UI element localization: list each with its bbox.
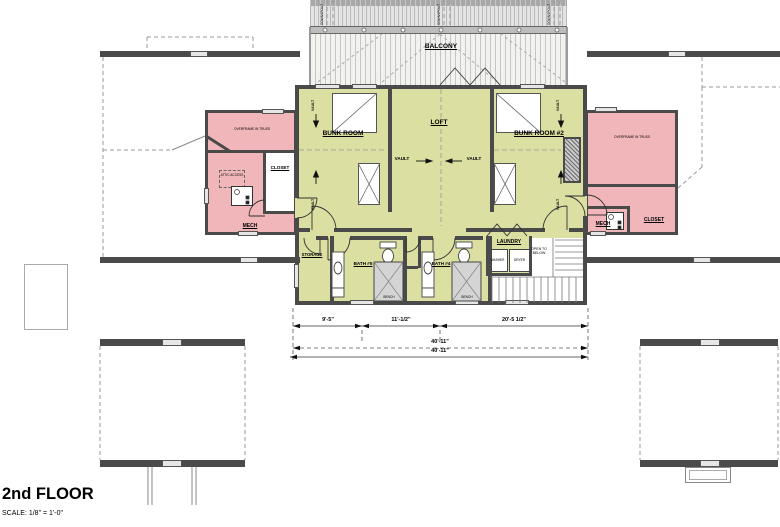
downspout-label: DOWNSPOUT [548, 4, 551, 25]
balcony-hip-lines [318, 34, 565, 82]
ceiling-break-lines [299, 89, 561, 226]
toilet-icon [380, 242, 396, 248]
vault-label: VAULT [464, 157, 484, 162]
room-label-closet-right: CLOSET [638, 218, 670, 223]
room-label-mech-right: MECH [590, 222, 616, 227]
room-label-laundry: LAUNDRY [487, 240, 531, 245]
room-label-mech-left: MECH [236, 224, 264, 229]
toilet-icon [459, 249, 470, 263]
roof-valley-lines [148, 136, 205, 505]
open-to-below-label: OPEN TO BELOW [526, 248, 552, 255]
dryer-label: DRYER [509, 259, 530, 262]
scale-note: SCALE: 1/8" = 1'-0" [2, 510, 63, 517]
room-label-bath4: BATH #4 [424, 262, 458, 267]
room-label-bath5: BATH #5 [346, 262, 380, 267]
note-overframe-right: OVERFRAME IN TRUSS [608, 136, 656, 139]
dim-seg2: 11'-1/2" [375, 318, 427, 324]
room-label-loft: LOFT [424, 120, 454, 127]
plan-linework [0, 0, 780, 527]
bed-lines [332, 93, 541, 205]
room-label-storage: STORAGE [296, 253, 328, 257]
roof-dashed-lines [100, 0, 780, 460]
dim-seg3: 20'-5 1/2" [478, 318, 550, 324]
sink-icon [334, 262, 342, 274]
attic-diagonal-wall [206, 136, 231, 152]
page-title: 2nd FLOOR [2, 486, 94, 503]
vault-label-vertical: VAULT [557, 100, 561, 111]
downspout-label: DOWNSPOUT [438, 4, 441, 25]
toilet-icon [456, 242, 472, 248]
room-label-bunk-room-2: BUNK ROOM #2 [510, 131, 568, 138]
downspout-label: DOWNSPOUT [321, 4, 324, 25]
floor-plan: ATTIC ACCESS [0, 0, 780, 527]
door-swings [249, 68, 607, 260]
water-heater-details [235, 190, 622, 230]
bench-label: BENCH [455, 296, 479, 299]
toilet-icon [383, 249, 394, 263]
vault-label-vertical: VAULT [557, 199, 561, 210]
vault-label-vertical: VAULT [312, 199, 316, 210]
bench-label: BENCH [377, 296, 401, 299]
room-label-closet-left: CLOSET [265, 166, 295, 171]
room-label-bunk-room: BUNK ROOM [318, 131, 368, 138]
dim-overall-2: 40'-11" [410, 349, 470, 355]
dim-overall-1: 40'-11" [410, 340, 470, 346]
note-overframe-left: OVERFRAME IN TRUSS [228, 128, 276, 131]
rail-posts [323, 28, 559, 32]
cabinet-icon [332, 288, 344, 297]
vault-label: VAULT [392, 157, 412, 162]
washer-label: WASHER [487, 259, 508, 262]
vault-label-vertical: VAULT [312, 100, 316, 111]
cabinet-icon [422, 288, 434, 297]
dim-seg1: 9'-5" [305, 318, 351, 324]
room-label-balcony: BALCONY [413, 44, 469, 51]
